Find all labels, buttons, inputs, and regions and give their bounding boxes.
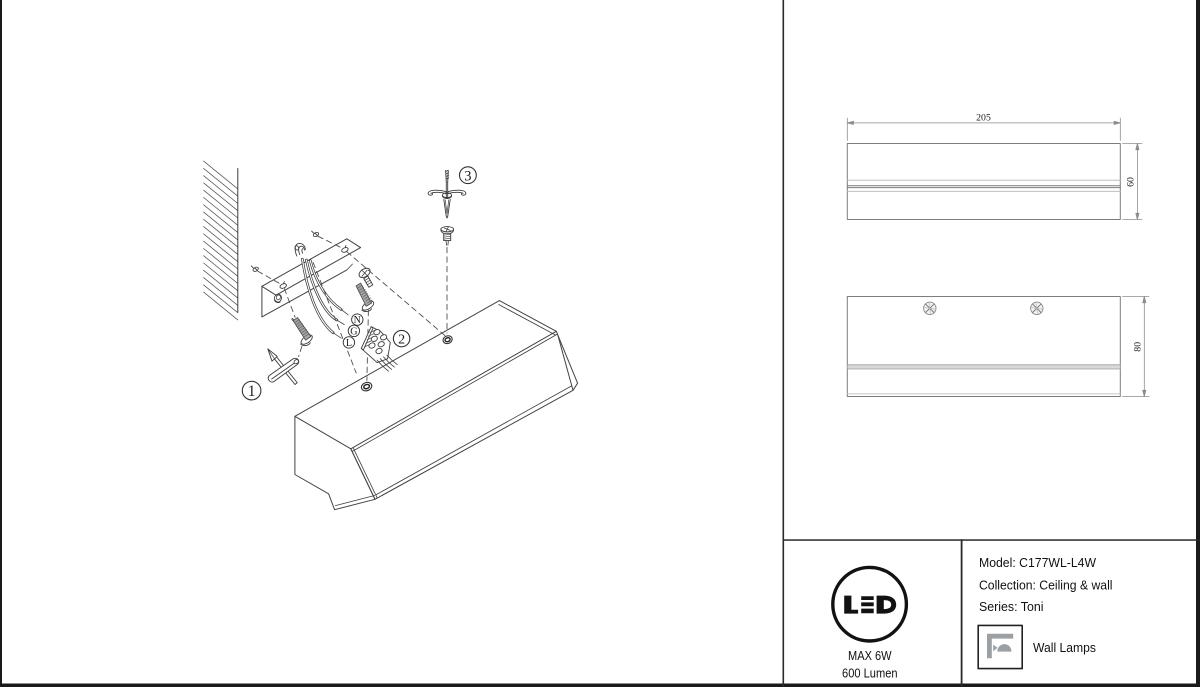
svg-text:3: 3	[464, 168, 471, 184]
svg-text:80: 80	[1133, 342, 1144, 352]
svg-text:Series: Toni: Series: Toni	[979, 599, 1044, 614]
svg-text:205: 205	[976, 113, 991, 124]
svg-text:1: 1	[248, 383, 256, 400]
svg-text:N: N	[354, 315, 361, 326]
svg-text:600 Lumen: 600 Lumen	[842, 666, 898, 681]
svg-text:60: 60	[1126, 177, 1137, 187]
svg-text:2: 2	[398, 333, 405, 348]
svg-text:Collection: Ceiling & wall: Collection: Ceiling & wall	[979, 577, 1113, 592]
svg-text:G: G	[350, 327, 357, 338]
svg-text:Wall Lamps: Wall Lamps	[1033, 640, 1096, 655]
svg-text:L: L	[346, 338, 352, 349]
svg-text:MAX 6W: MAX 6W	[848, 648, 892, 663]
svg-text:Model: C177WL-L4W: Model: C177WL-L4W	[979, 555, 1097, 570]
